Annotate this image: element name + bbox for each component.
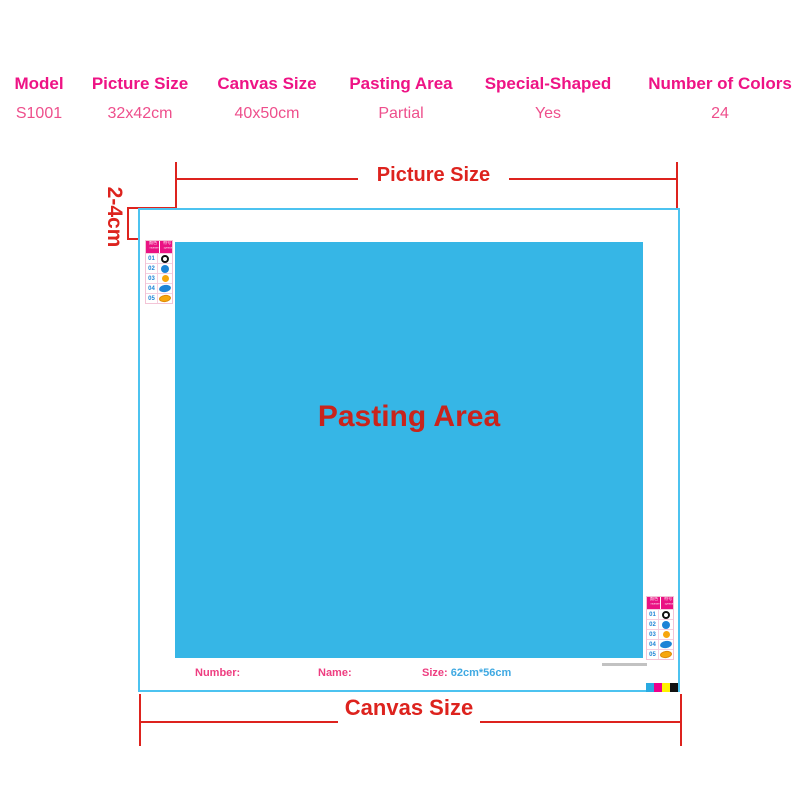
spec-value-4: Yes [473, 104, 623, 124]
legend-number: 02 [647, 620, 659, 629]
legend-number: 01 [146, 254, 158, 263]
spec-value-3: Partial [341, 104, 461, 124]
legend-symbol-cell [158, 284, 172, 293]
spec-value-2: 40x50cm [207, 104, 327, 124]
legend-number: 05 [647, 650, 659, 659]
spec-value-1: 32x42cm [80, 104, 200, 124]
fine-print-smudge [602, 663, 647, 666]
legend-symbol-cell [158, 294, 172, 303]
legend-symbol-cell [659, 610, 673, 619]
picture-size-dim-label: Picture Size [358, 164, 509, 186]
canvas-size-dim-line-right [480, 721, 681, 723]
spec-header-1: Picture Size [80, 73, 200, 95]
legend-row: 03 [146, 273, 172, 283]
canvas-size-dim-label: Canvas Size [338, 696, 480, 720]
oval-orange-icon [660, 650, 673, 659]
spec-header-5: Number of Colors [630, 73, 800, 95]
cmyk-square [670, 683, 678, 692]
ring-black-icon [161, 255, 169, 263]
footer-name-label: Name: [318, 667, 352, 679]
legend-header-en: Symbol [664, 603, 669, 606]
circle-blue-icon [662, 621, 670, 629]
kit-size-infographic: ModelS1001Picture Size32x42cmCanvas Size… [0, 0, 800, 800]
legend-symbol-cell [659, 640, 673, 649]
legend-number: 04 [647, 640, 659, 649]
legend-symbol-cell [158, 274, 172, 283]
canvas-size-dim-tick-left [139, 694, 141, 746]
canvas-size-dim-line-left [140, 721, 338, 723]
legend-header-en: Number [150, 247, 155, 250]
legend-header: 颜色Number符号Symbol [647, 597, 673, 609]
legend-header: 颜色Number符号Symbol [146, 241, 172, 253]
canvas-size-dim-tick-right [680, 694, 682, 746]
circle-yellow-icon [162, 275, 169, 282]
oval-blue-icon [158, 284, 171, 293]
pasting-area [175, 242, 643, 658]
legend-row: 05 [647, 649, 673, 659]
legend-row: 03 [647, 629, 673, 639]
legend-number: 02 [146, 264, 158, 273]
legend-row: 02 [146, 263, 172, 273]
legend-header-en: Symbol [163, 247, 168, 250]
legend-header-cell: 符号Symbol [661, 597, 674, 609]
spec-header-0: Model [4, 73, 74, 95]
oval-orange-icon [159, 294, 172, 303]
legend-header-cn: 符号 [163, 241, 169, 245]
margin-size-label: 2-4cm [103, 182, 125, 252]
legend-number: 04 [146, 284, 158, 293]
legend-number: 05 [146, 294, 158, 303]
legend-row: 04 [647, 639, 673, 649]
legend-row: 04 [146, 283, 172, 293]
spec-header-4: Special-Shaped [473, 73, 623, 95]
legend-row: 01 [146, 253, 172, 263]
legend-symbol-cell [158, 264, 172, 273]
legend-symbol-cell [659, 650, 673, 659]
legend-symbol-cell [659, 620, 673, 629]
spec-header-3: Pasting Area [341, 73, 461, 95]
footer-size: Size: 62cm*56cm [422, 667, 511, 679]
margin-bracket-vertical [127, 207, 129, 240]
ring-black-icon [662, 611, 670, 619]
legend-row: 05 [146, 293, 172, 303]
legend-symbol-cell [659, 630, 673, 639]
legend-header-cn: 颜色 [650, 597, 656, 601]
legend-row: 02 [647, 619, 673, 629]
pasting-area-label: Pasting Area [175, 400, 643, 434]
footer-size-value: 62cm*56cm [451, 667, 512, 679]
legend-symbol-cell [158, 254, 172, 263]
oval-blue-icon [659, 640, 672, 649]
legend-header-cell: 颜色Number [146, 241, 159, 253]
legend-header-cn: 颜色 [149, 241, 155, 245]
legend-header-en: Number [651, 603, 656, 606]
cmyk-square [646, 683, 654, 692]
legend-number: 01 [647, 610, 659, 619]
spec-header-2: Canvas Size [207, 73, 327, 95]
cmyk-color-bar [646, 683, 678, 692]
picture-size-dim-line-left [176, 178, 358, 180]
color-legend-top-left: 颜色Number符号Symbol0102030405 [145, 240, 173, 304]
color-legend-bottom-right: 颜色Number符号Symbol0102030405 [646, 596, 674, 660]
circle-yellow-icon [663, 631, 670, 638]
legend-number: 03 [146, 274, 158, 283]
legend-header-cell: 符号Symbol [160, 241, 173, 253]
cmyk-square [662, 683, 670, 692]
legend-row: 01 [647, 609, 673, 619]
cmyk-square [654, 683, 662, 692]
spec-value-0: S1001 [4, 104, 74, 124]
legend-number: 03 [647, 630, 659, 639]
legend-header-cn: 符号 [664, 597, 670, 601]
footer-number-label: Number: [195, 667, 240, 679]
spec-value-5: 24 [630, 104, 800, 124]
legend-header-cell: 颜色Number [647, 597, 660, 609]
circle-blue-icon [161, 265, 169, 273]
footer-size-label: Size: [422, 667, 448, 679]
picture-size-dim-line-right [509, 178, 678, 180]
